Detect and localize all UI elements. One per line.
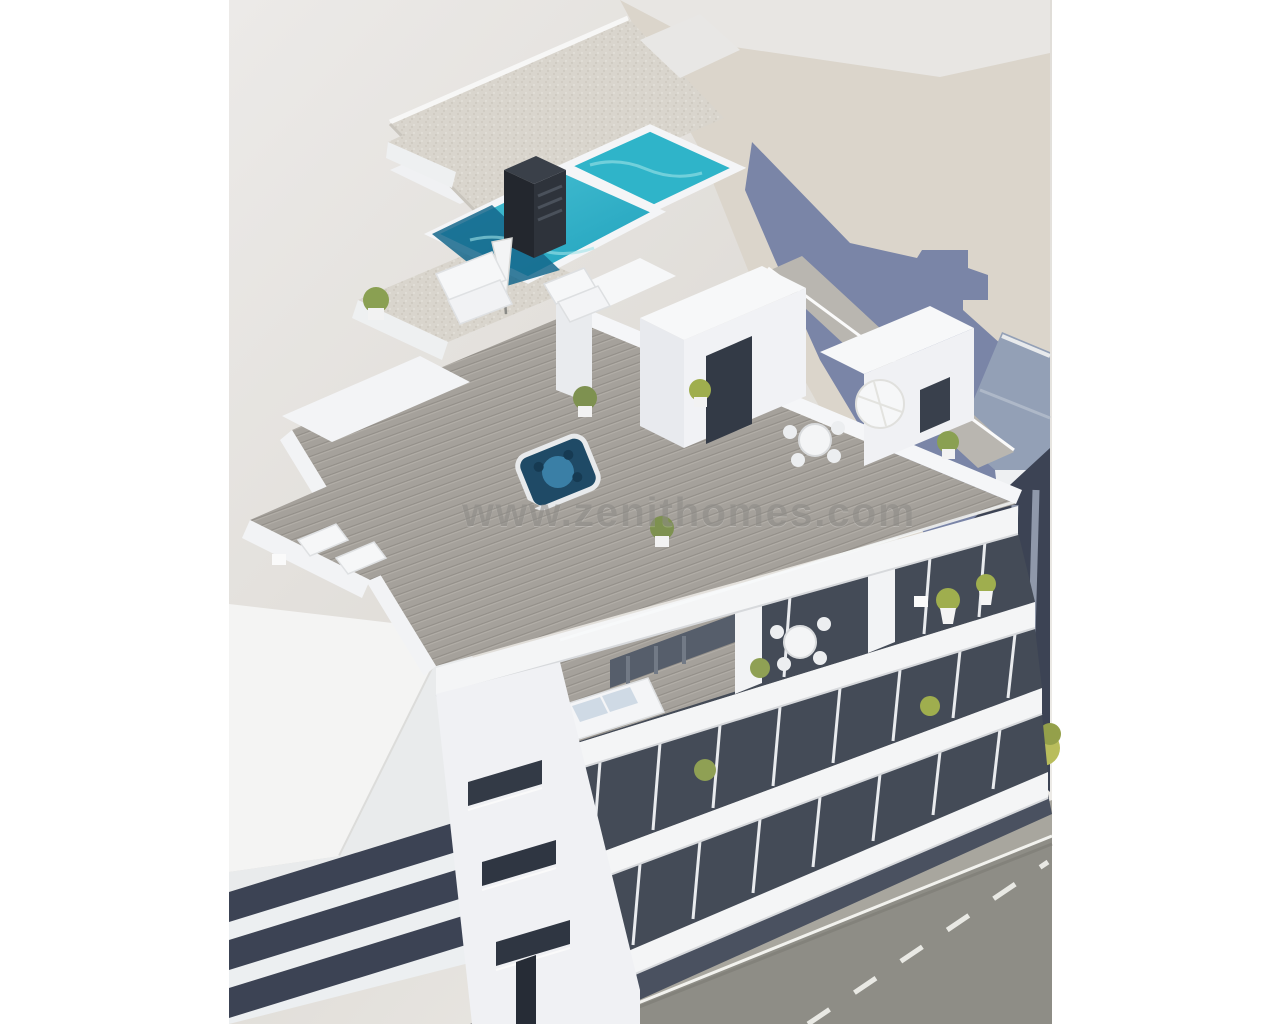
balcony-divider [735,600,762,694]
balcony-table [914,596,928,607]
balcony-plant [694,759,716,781]
balcony-plant [750,658,770,678]
chimney [504,156,566,258]
side-table [272,554,286,565]
render-canvas: www.zenithomes.com [0,0,1280,1024]
render-illustration [0,0,1280,1024]
balcony-plant [920,696,940,716]
entrance-door [516,955,536,1024]
balcony-divider [868,563,895,653]
